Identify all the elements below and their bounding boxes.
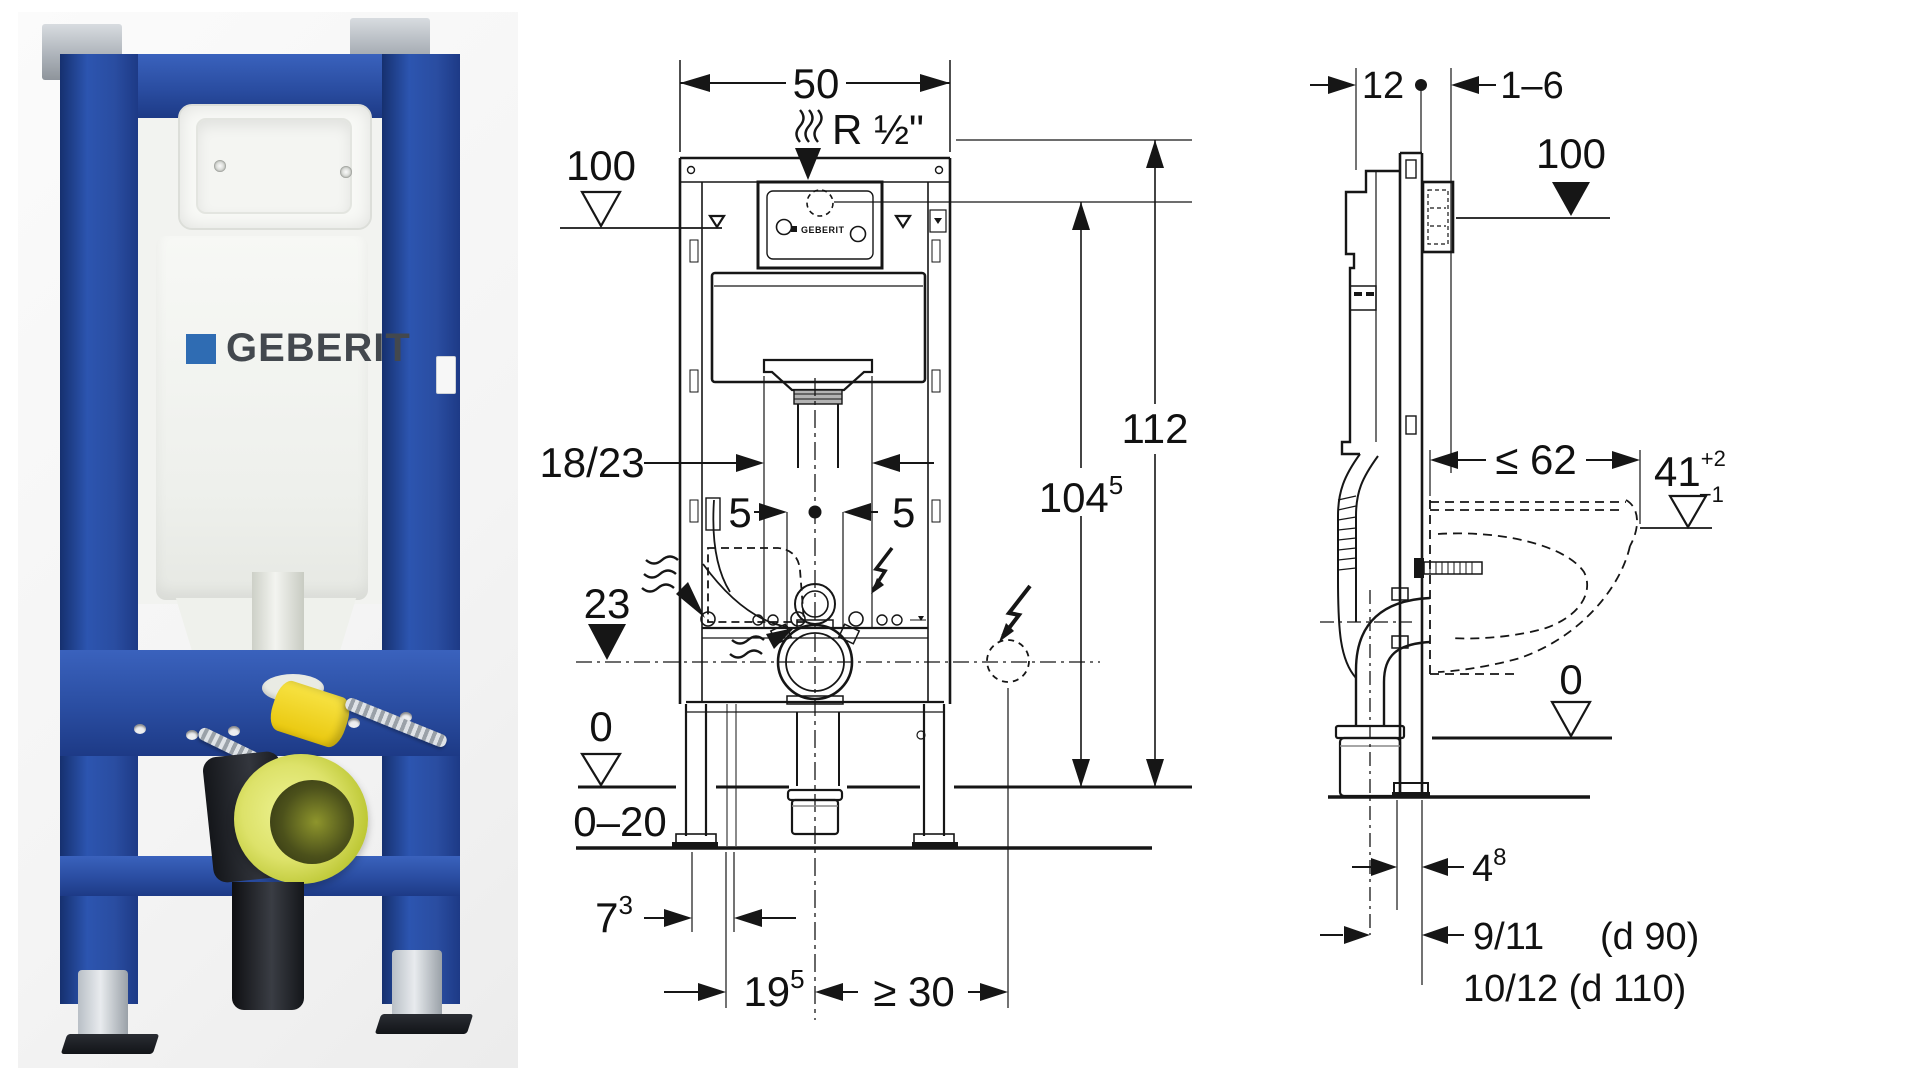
datum-triangle-filled-icon <box>588 624 626 660</box>
dim-outlet-90: 9/11 (d 90) <box>1320 916 1699 958</box>
foot-right <box>392 950 442 1024</box>
dim-911-label: 9/11 <box>1473 916 1544 958</box>
dim-wall-gap-label: 1–6 <box>1500 65 1563 107</box>
dim-1012-label: 10/12 (d 110) <box>1463 968 1686 1010</box>
dim-112-label: 112 <box>1122 405 1189 452</box>
wc-bowl-dashed-outline <box>1430 500 1637 676</box>
datum-plate-level-side: 100 <box>1456 130 1610 218</box>
dim-buildup-label: 0–20 <box>573 798 666 845</box>
dim-center-offsets: 5 5 <box>728 489 915 628</box>
crossbar-hole <box>134 724 146 734</box>
crossbar-hole <box>348 718 360 728</box>
rail-sticker <box>436 356 456 394</box>
product-photo: GEBERIT <box>18 12 518 1068</box>
foot-left <box>78 970 128 1044</box>
dim-offset-left-label: 5 <box>728 489 751 536</box>
dim-73-label: 73 <box>595 890 633 941</box>
flush-plate-side <box>1423 182 1453 252</box>
drain-pipe-black <box>232 882 304 1010</box>
dim-62-label: ≤ 62 <box>1495 436 1576 483</box>
dim-rim-height: 41+2−1 <box>1640 446 1726 528</box>
panel-brand-label: GEBERIT <box>801 225 845 235</box>
cover-screw-left <box>214 160 226 172</box>
supply-point-dashed-circle-icon <box>807 190 833 216</box>
flush-bend <box>764 360 872 468</box>
datum-triangle-open-icon <box>582 754 620 785</box>
datum-outlet-height: 23 <box>584 580 631 660</box>
dim-floor-side-label: 0 <box>1559 656 1582 703</box>
bend-space-dashed-box <box>708 548 804 622</box>
dim-depth-and-clearance: 195 ≥ 30 <box>664 688 1008 1015</box>
dim-clearance-label: ≥ 30 <box>873 968 954 1015</box>
datum-triangle-filled-icon <box>1552 182 1590 216</box>
geberit-logo-text: GEBERIT <box>226 326 411 371</box>
foot-plate-right <box>375 1014 473 1034</box>
heat-icon <box>642 557 705 619</box>
flush-actuation-panel: GEBERIT <box>758 182 882 268</box>
side-view-drawing: 12 1–6 100 <box>1280 30 1860 1040</box>
dim-plate-level-label: 100 <box>566 142 636 189</box>
datum-finished-floor: 0 <box>582 703 620 785</box>
crossbar-upper <box>60 650 460 756</box>
fixing-rod-icon <box>1414 558 1482 578</box>
water-supply-icon <box>795 110 822 180</box>
cistern-tank <box>712 273 925 382</box>
datum-finished-floor-side: 0 <box>1432 656 1612 738</box>
dim-supply-label: R ½" <box>832 106 924 153</box>
cistern-side-profile <box>1342 171 1400 454</box>
drain-elbow-side <box>1336 588 1430 796</box>
front-view-drawing: 50 R ½" 100 <box>540 30 1220 1040</box>
dim-actuation-height: 1045 <box>1039 202 1124 787</box>
geberit-logo-square-icon <box>186 334 216 364</box>
level-mark-icon <box>896 216 910 227</box>
dim-total-height: 112 <box>956 140 1192 787</box>
geberit-logo: GEBERIT <box>186 326 411 371</box>
crossbar-hole <box>228 726 240 736</box>
crossbar-hole <box>186 730 198 740</box>
dim-911-note: (d 90) <box>1600 916 1699 958</box>
datum-plate-level: 100 <box>560 142 722 228</box>
cistern-front-panel <box>156 236 368 600</box>
dim-flush-bend-label: 18/23 <box>540 439 645 486</box>
dim-1045-label: 1045 <box>1039 470 1124 521</box>
dim-12-label: 12 <box>1362 65 1404 107</box>
datum-triangle-open-icon <box>1552 702 1590 736</box>
datum-triangle-open-icon <box>1670 496 1706 527</box>
page: { "photo": { "brand": "GEBERIT", "frame_… <box>0 0 1920 1080</box>
lightning-icon <box>871 548 892 594</box>
dim-195-label: 195 <box>743 964 804 1015</box>
side-rail <box>1392 153 1430 798</box>
electrical-connection-icon <box>987 586 1030 682</box>
dim-frame-depth: 12 1–6 <box>1310 65 1564 473</box>
dim-offset-right-label: 5 <box>892 489 915 536</box>
cover-screw-right <box>340 166 352 178</box>
dim-top-width-label: 50 <box>793 60 840 107</box>
dim-floor-label: 0 <box>589 703 612 750</box>
dim-outlet-label: 23 <box>584 580 631 627</box>
dim-48-label: 48 <box>1472 844 1507 890</box>
drain-elbow-opening <box>270 780 354 864</box>
foot-plate-left <box>61 1034 159 1054</box>
dim-plate-level-side-label: 100 <box>1536 130 1606 177</box>
datum-triangle-open-icon <box>582 192 620 226</box>
level-mark-icon <box>710 216 724 227</box>
